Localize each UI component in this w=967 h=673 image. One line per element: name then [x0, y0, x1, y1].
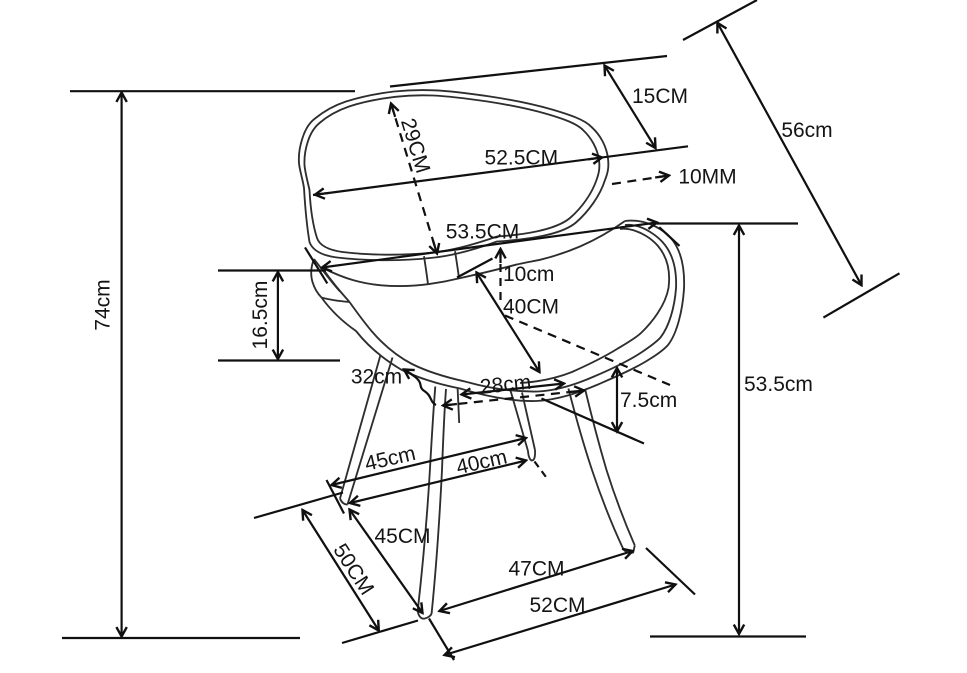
- svg-text:15CM: 15CM: [632, 85, 688, 108]
- svg-text:52CM: 52CM: [529, 594, 585, 617]
- svg-text:16.5cm: 16.5cm: [249, 281, 272, 350]
- svg-text:53.5CM: 53.5CM: [446, 220, 520, 243]
- svg-text:74cm: 74cm: [91, 279, 114, 330]
- svg-text:32cm: 32cm: [351, 365, 402, 388]
- svg-text:7.5cm: 7.5cm: [620, 389, 677, 412]
- svg-text:56cm: 56cm: [781, 119, 832, 142]
- svg-text:10MM: 10MM: [678, 165, 736, 188]
- svg-text:52.5CM: 52.5CM: [485, 147, 559, 170]
- svg-text:53.5cm: 53.5cm: [744, 373, 813, 396]
- svg-text:45CM: 45CM: [374, 525, 430, 548]
- svg-text:10cm: 10cm: [503, 263, 554, 286]
- svg-text:47CM: 47CM: [508, 557, 564, 580]
- svg-text:40CM: 40CM: [503, 295, 559, 318]
